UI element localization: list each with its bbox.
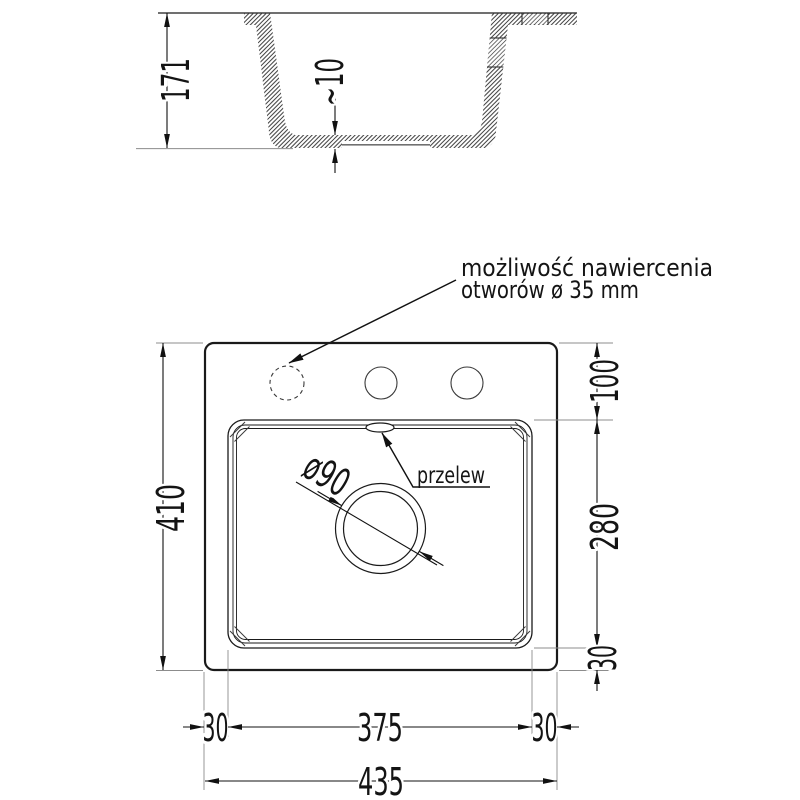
faucet-hole-dashed	[270, 366, 304, 400]
bowl-corner-chamfers	[230, 422, 530, 646]
dim-holes-offset: 100	[583, 359, 628, 403]
section-body	[244, 13, 577, 148]
section-view: 171 ~10	[136, 13, 577, 173]
overflow-label: przelew	[417, 463, 485, 489]
drill-note-leader	[289, 280, 456, 363]
bowl-outline	[228, 420, 532, 648]
dim-bowl-right-margin: 30	[532, 706, 558, 751]
plan-view: ø90 przelew	[205, 343, 557, 670]
dim-overall-height: 410	[149, 484, 194, 532]
dim-bowl-width: 375	[357, 706, 403, 751]
drain-circle-inner	[344, 492, 418, 566]
dim-overall-width: 435	[358, 760, 404, 800]
drain-circle-outer	[336, 484, 426, 574]
technical-drawing-page: 171 ~10 możliwość nawiercenia otworów ø …	[0, 0, 800, 800]
drill-note: możliwość nawiercenia otworów ø 35 mm	[289, 254, 713, 363]
dim-bowl-left-margin: 30	[203, 706, 229, 751]
bowl-rim-line-1	[233, 425, 527, 643]
dim-bowl-length: 280	[583, 503, 628, 551]
section-body-outline	[244, 13, 577, 148]
overflow-slot	[366, 423, 394, 432]
drain-dim-arrow-2	[419, 551, 443, 565]
sink-technical-drawing: 171 ~10 możliwość nawiercenia otworów ø …	[0, 0, 800, 800]
dim-bottom-thickness: ~10	[308, 58, 353, 106]
dim-section-height: 171	[154, 58, 199, 102]
sink-outline	[205, 343, 557, 670]
faucet-hole-2	[451, 367, 483, 399]
faucet-hole-1	[365, 367, 397, 399]
bowl-rim-line-2	[237, 429, 524, 640]
dim-bowl-bottom-margin: 30	[581, 645, 626, 671]
annotation-line2: otworów ø 35 mm	[461, 276, 639, 304]
